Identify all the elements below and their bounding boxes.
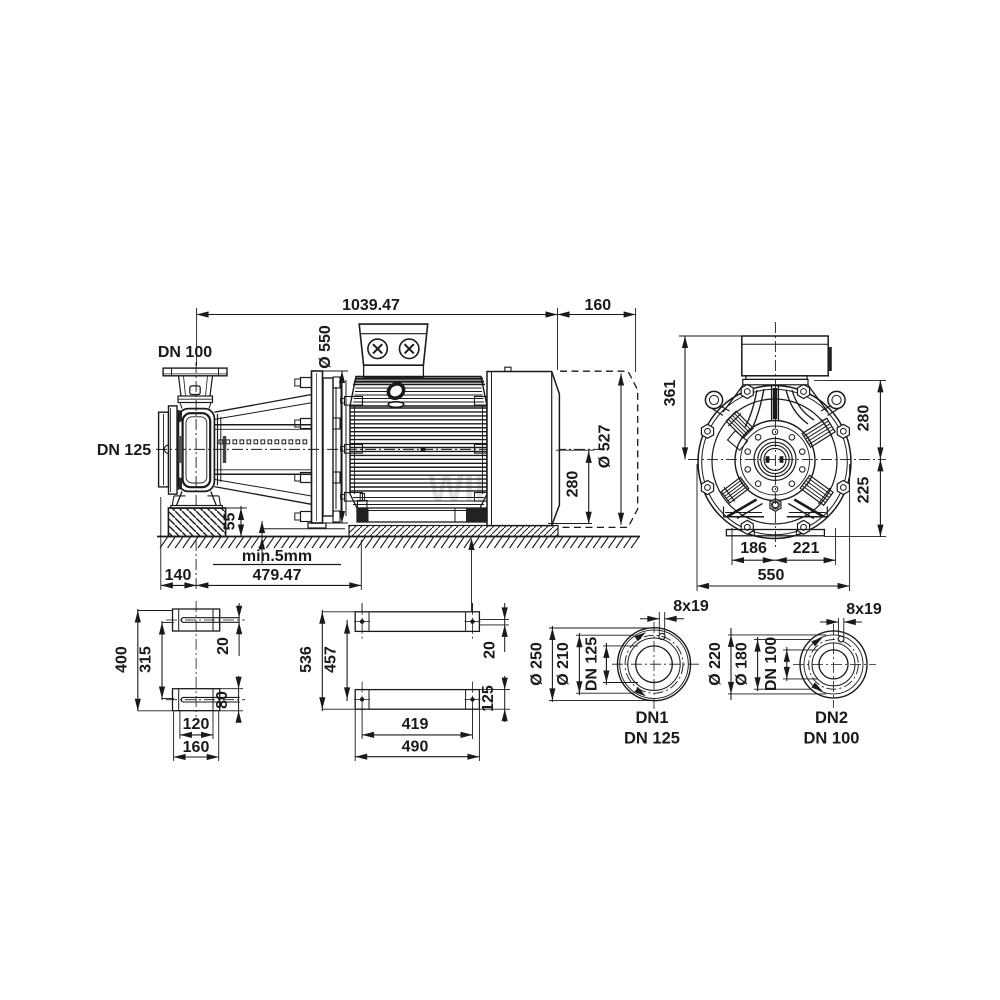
svg-text:8x19: 8x19 xyxy=(846,601,882,618)
svg-text:315: 315 xyxy=(138,646,155,673)
svg-text:Ø 220: Ø 220 xyxy=(707,642,724,686)
svg-text:1039.47: 1039.47 xyxy=(342,297,400,314)
svg-text:457: 457 xyxy=(323,646,340,673)
svg-text:Ø 210: Ø 210 xyxy=(555,642,572,686)
svg-text:min.5mm: min.5mm xyxy=(242,548,312,565)
svg-text:DN1: DN1 xyxy=(635,709,668,727)
svg-text:120: 120 xyxy=(183,716,210,733)
svg-text:160: 160 xyxy=(183,739,210,756)
svg-text:DN 125: DN 125 xyxy=(97,442,151,459)
svg-text:490: 490 xyxy=(402,739,429,756)
svg-text:DN 100: DN 100 xyxy=(763,637,780,691)
svg-text:160: 160 xyxy=(584,297,611,314)
svg-text:186: 186 xyxy=(740,540,767,557)
svg-text:225: 225 xyxy=(856,477,873,504)
svg-text:221: 221 xyxy=(793,540,820,557)
svg-text:140: 140 xyxy=(165,567,192,584)
svg-text:125: 125 xyxy=(480,685,497,712)
svg-text:419: 419 xyxy=(402,716,429,733)
svg-text:280: 280 xyxy=(856,405,873,432)
svg-text:DN 125: DN 125 xyxy=(584,637,601,691)
svg-text:479.47: 479.47 xyxy=(253,567,302,584)
svg-text:8x19: 8x19 xyxy=(673,598,709,615)
svg-text:20: 20 xyxy=(215,637,232,655)
svg-text:536: 536 xyxy=(298,646,315,673)
svg-text:DN 125: DN 125 xyxy=(624,730,680,748)
svg-text:80: 80 xyxy=(214,691,231,709)
svg-text:Ø 250: Ø 250 xyxy=(529,642,546,686)
svg-text:DN 100: DN 100 xyxy=(158,344,212,361)
svg-text:400: 400 xyxy=(114,646,131,673)
svg-text:DN 100: DN 100 xyxy=(804,730,860,748)
svg-text:Ø 527: Ø 527 xyxy=(597,425,614,469)
svg-text:Ø 550: Ø 550 xyxy=(317,325,334,369)
svg-text:DN2: DN2 xyxy=(815,709,848,727)
svg-text:361: 361 xyxy=(662,380,679,407)
svg-text:Ø 180: Ø 180 xyxy=(734,642,751,686)
svg-text:550: 550 xyxy=(758,567,785,584)
svg-text:20: 20 xyxy=(482,641,499,659)
svg-text:280: 280 xyxy=(565,471,582,498)
svg-text:55: 55 xyxy=(222,513,239,531)
